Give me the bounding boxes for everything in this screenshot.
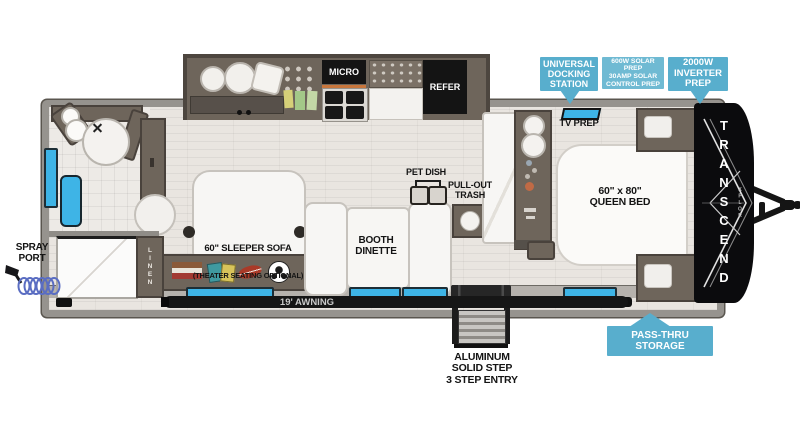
island-counter	[482, 112, 518, 244]
queen-bed-label: 60" x 80" QUEEN BED	[572, 186, 668, 209]
stove	[322, 88, 368, 122]
burner-icon	[346, 106, 364, 119]
callout-inverter-prep: 2000W INVERTER PREP	[668, 57, 728, 91]
trash-can-icon	[460, 211, 480, 231]
decor-item	[524, 208, 536, 212]
tv-prep-label: TV PREP	[548, 119, 610, 129]
brand-name: TRANSCEND	[694, 111, 754, 295]
island-sink-icon	[521, 133, 546, 158]
vent-icon	[246, 110, 251, 115]
decor-dot-icon	[525, 174, 530, 179]
spice-rack-icon	[282, 64, 316, 92]
awning-label: 19' AWNING	[264, 297, 350, 308]
ottoman	[527, 241, 555, 260]
bedroom-wardrobe	[636, 254, 698, 302]
bathroom-sink-icon	[82, 118, 130, 166]
burner-icon	[325, 91, 343, 104]
pillow-icon	[644, 264, 672, 288]
stabilizer-jack-icon	[56, 298, 72, 307]
bedroom-wardrobe	[636, 108, 698, 152]
burner-icon	[325, 106, 343, 119]
cutting-board-icon	[295, 91, 305, 110]
callout-tail-icon	[560, 90, 580, 104]
refrigerator: REFER	[423, 60, 467, 114]
kitchen-slideout: MICRO REFER	[183, 54, 490, 120]
kitchen-sink-icon	[224, 62, 256, 94]
callout-universal-docking-station: UNIVERSAL DOCKING STATION	[540, 57, 598, 91]
shower-door-icon	[60, 175, 82, 227]
cutting-board-icon	[250, 61, 285, 96]
decor-dot-icon	[525, 182, 534, 191]
linen-cabinet: LINEN	[136, 236, 164, 298]
pull-out-trash-label: PULL-OUT TRASH	[442, 181, 498, 200]
step-base-icon	[454, 344, 508, 348]
wardrobe	[140, 118, 166, 206]
kitchen-island	[514, 110, 552, 250]
front-cap: TRANSCEND XPLOR	[694, 103, 754, 303]
burner-icon	[346, 91, 364, 104]
decor-item	[526, 216, 535, 219]
handle-icon	[150, 158, 154, 167]
cutting-board-icon	[283, 90, 293, 109]
pillow-icon	[644, 116, 672, 138]
kitchen-sink-icon	[200, 66, 226, 92]
linen-label: LINEN	[147, 247, 154, 287]
window	[44, 148, 58, 208]
utensil-drawer	[369, 60, 423, 88]
sleeper-sofa-label: 60" SLEEPER SOFA	[168, 244, 328, 254]
brand-series: XPLOR	[737, 187, 743, 220]
spray-port-label: SPRAY PORT	[6, 243, 58, 265]
callout-tail-icon	[690, 90, 710, 104]
sleeper-sofa-option-label: (THEATER SEATING OPTIONAL)	[168, 272, 328, 280]
vent-icon	[237, 110, 242, 115]
callout-solar-prep: 600W SOLAR PREP 30AMP SOLAR CONTROL PREP	[602, 57, 664, 89]
awning-endcap-icon	[161, 297, 169, 307]
pet-dish-label: PET DISH	[396, 168, 456, 178]
kitchen-counter	[369, 88, 423, 120]
callout-pass-thru-storage: PASS-THRU STORAGE	[607, 326, 713, 356]
awning-bar: 19' AWNING	[164, 296, 628, 308]
step-treads-icon	[458, 310, 506, 344]
booth-dinette-label: BOOTH DINETTE	[336, 236, 416, 258]
callout-tail-icon	[629, 313, 671, 327]
decor-dot-icon	[526, 160, 532, 166]
entry-steps-label: ALUMINUM SOLID STEP 3 STEP ENTRY	[434, 352, 530, 386]
floorplan-canvas: UNIVERSAL DOCKING STATION 600W SOLAR PRE…	[0, 0, 800, 437]
cutting-board-icon	[307, 91, 318, 110]
shower	[56, 236, 138, 299]
decor-dot-icon	[532, 168, 537, 173]
entry-steps	[452, 308, 510, 348]
pet-dish-icon	[410, 186, 429, 205]
microwave: MICRO	[322, 60, 366, 84]
